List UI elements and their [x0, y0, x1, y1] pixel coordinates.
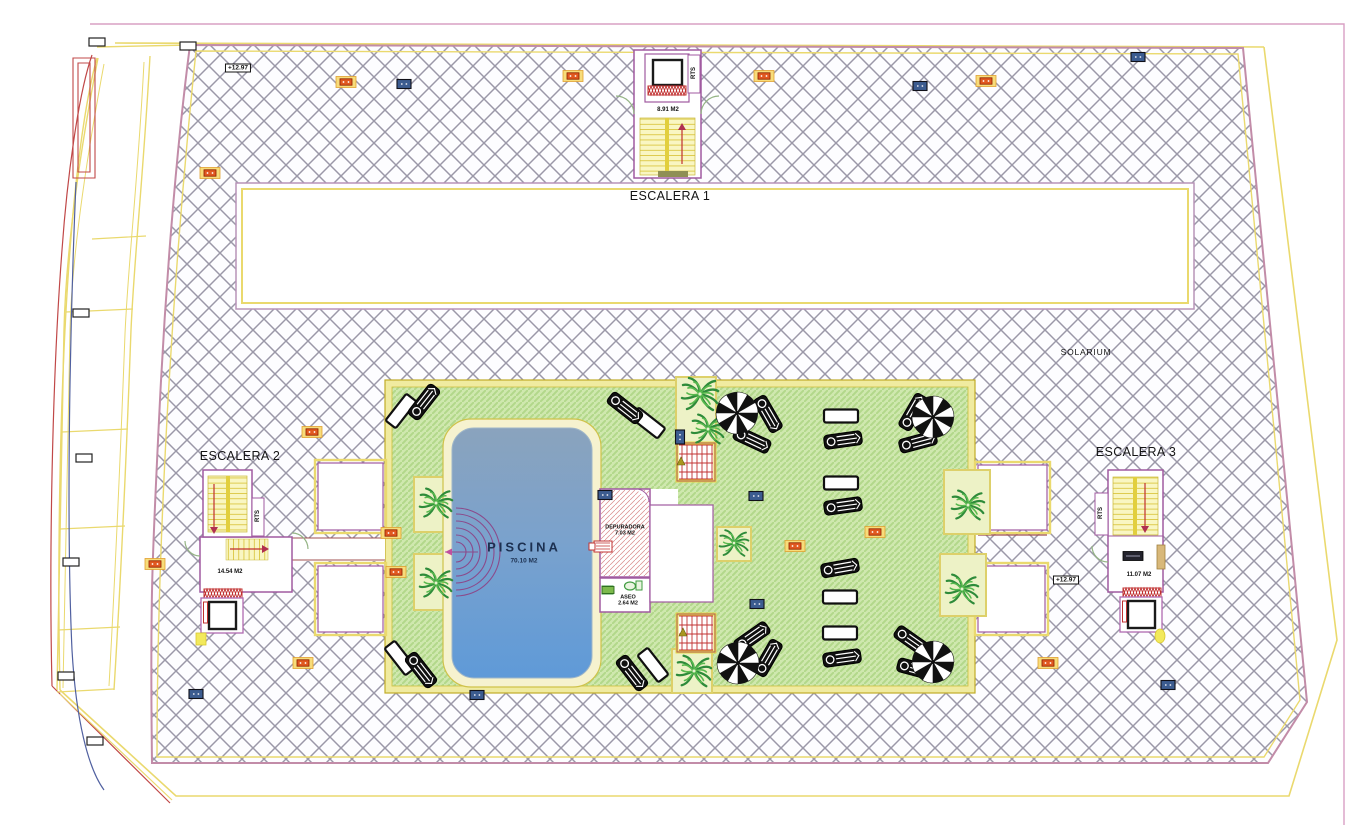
orange-badge-icon — [563, 71, 583, 82]
white-badge-icon — [76, 454, 92, 462]
lift-shaft — [653, 60, 682, 85]
orange-badge-icon — [381, 528, 401, 539]
parasol-icon — [716, 392, 758, 434]
depuradora-label: DEPURADORA 7.03 M2 — [605, 525, 644, 538]
orange-badge-icon — [976, 76, 996, 87]
blue-badge-icon — [397, 80, 411, 89]
aseo-area: 2.64 M2 — [618, 601, 638, 607]
blue-badge-icon — [676, 430, 685, 444]
side-table-icon — [823, 591, 857, 604]
orange-badge-icon — [200, 168, 220, 179]
elevation-label-1: +12.97 — [225, 64, 251, 73]
blue-badge-icon — [598, 491, 612, 500]
blue-badge-icon — [913, 82, 927, 91]
escalera2-area-label: 14.54 M2 — [217, 569, 242, 575]
plan-drawing — [0, 0, 1347, 825]
open-roof-rect — [236, 183, 1194, 309]
lift-icon — [1120, 597, 1162, 632]
rts-label-1: RTS — [691, 67, 697, 79]
side-table-icon — [823, 627, 857, 640]
orange-badge-icon — [145, 559, 165, 570]
lift-icon — [201, 598, 243, 633]
piscina-area-label: 70.10 M2 — [510, 558, 537, 565]
orange-badge-icon — [302, 427, 322, 438]
dark-badge-icon — [1123, 552, 1143, 561]
orange-badge-icon — [1038, 658, 1058, 669]
aseo-label: ASEO 2.64 M2 — [618, 595, 638, 608]
white-badge-icon — [180, 42, 196, 50]
blue-badge-icon — [189, 690, 203, 699]
floor-plan-canvas: ESCALERA 1 ESCALERA 2 ESCALERA 3 SOLARIU… — [0, 0, 1347, 825]
blue-badge-icon — [750, 600, 764, 609]
orange-badge-icon — [865, 527, 885, 538]
blue-badge-icon — [1131, 53, 1145, 62]
green-badge-icon — [602, 587, 614, 594]
blue-badge-icon — [749, 492, 763, 501]
escalera3-area-label: 11.07 M2 — [1127, 572, 1152, 578]
elevation-label-2: +12.97 — [1053, 576, 1079, 585]
parasol-icon — [717, 642, 759, 684]
blue-badge-icon — [1161, 681, 1175, 690]
lift-brace-icon — [648, 86, 686, 95]
toilet-icon — [625, 582, 636, 590]
escalera2-label: ESCALERA 2 — [200, 449, 280, 463]
orange-badge-icon — [754, 71, 774, 82]
solarium-label: SOLARIUM — [1061, 347, 1112, 357]
lift-brace-icon — [204, 589, 242, 598]
orange-badge-icon — [293, 658, 313, 669]
rts-label-3: RTS — [1098, 507, 1104, 519]
parasol-icon — [912, 396, 954, 438]
escalera1-label: ESCALERA 1 — [630, 189, 710, 203]
side-table-icon — [824, 410, 858, 423]
depuradora-area: 7.03 M2 — [605, 531, 644, 537]
white-badge-icon — [58, 672, 74, 680]
piscina-label: PISCINA — [487, 540, 561, 555]
orange-badge-icon — [785, 541, 805, 552]
parasol-icon — [912, 641, 954, 683]
side-table-icon — [824, 477, 858, 490]
escalera3-label: ESCALERA 3 — [1096, 445, 1176, 459]
white-badge-icon — [63, 558, 79, 566]
white-badge-icon — [73, 309, 89, 317]
escalera1-area-label: 8.91 M2 — [657, 107, 679, 113]
orange-badge-icon — [386, 567, 406, 578]
white-badge-icon — [89, 38, 105, 46]
rts-label-2: RTS — [255, 510, 261, 522]
orange-badge-icon — [336, 77, 356, 88]
cistern-icon — [636, 581, 642, 590]
lift-brace-icon — [1123, 588, 1161, 597]
white-badge-icon — [87, 737, 103, 745]
blue-badge-icon — [470, 691, 484, 700]
